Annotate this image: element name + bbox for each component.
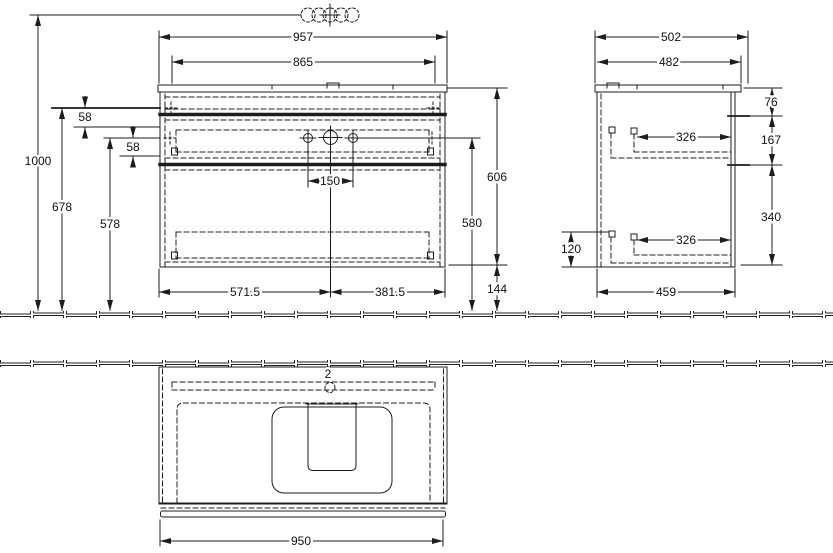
- plan-dimensions: 950: [160, 520, 443, 548]
- dim-front-height-total: 1000: [25, 154, 52, 168]
- dim-front-height-clearance: 144: [487, 282, 507, 296]
- dim-front-rail-offset-bottom: 58: [126, 140, 140, 154]
- dim-front-span-right: 381.5: [375, 285, 405, 299]
- front-worktop: [158, 83, 507, 92]
- technical-drawing-canvas: 957 865 1000 678 578 58 58 150: [0, 0, 833, 553]
- dim-side-depth-body: 459: [656, 285, 676, 299]
- floor-hatch-upper: [0, 311, 833, 318]
- dim-front-span-left: 571.5: [230, 285, 260, 299]
- dim-front-height-body: 606: [487, 170, 507, 184]
- dim-side-drawer-depth-lower: 326: [676, 233, 696, 247]
- dim-front-rail-offset-top: 58: [78, 110, 92, 124]
- dim-side-offset-top: 76: [764, 95, 778, 109]
- dim-side-depth-total: 502: [661, 30, 681, 44]
- dim-side-height-lower: 340: [761, 210, 781, 224]
- plan-hole-count-label: 2: [325, 367, 332, 381]
- dim-front-width-total: 957: [293, 30, 313, 44]
- dim-side-depth-top: 482: [659, 55, 679, 69]
- floor-hatch-lower: [0, 360, 833, 367]
- front-drill-holes: [300, 126, 480, 297]
- plan-view: 2 950: [159, 367, 447, 548]
- dim-front-height-holes-rail: 578: [100, 217, 120, 231]
- tap-hole-options-icon: [30, 4, 359, 26]
- side-dimensions: 502 482 326 326 120 459 76 167: [561, 30, 782, 299]
- dim-front-width-inner: 865: [293, 55, 313, 69]
- dim-front-hole-spacing: 150: [320, 174, 340, 188]
- dim-front-height-holes: 580: [462, 216, 482, 230]
- side-worktop: [595, 83, 741, 92]
- dim-plan-width-basin: 950: [291, 534, 311, 548]
- dim-side-height-plinth-rail: 120: [561, 242, 581, 256]
- dim-side-drawer-gap: 167: [761, 133, 781, 147]
- dim-front-height-top-rail: 678: [52, 200, 72, 214]
- front-cabinet-body: [160, 92, 445, 267]
- technical-drawing-page: 957 865 1000 678 578 58 58 150: [0, 0, 833, 553]
- dim-side-drawer-depth-upper: 326: [676, 130, 696, 144]
- side-view: 502 482 326 326 120 459 76 167: [561, 30, 782, 299]
- side-cabinet-body: [597, 92, 749, 267]
- front-view: 957 865 1000 678 578 58 58 150: [25, 4, 508, 311]
